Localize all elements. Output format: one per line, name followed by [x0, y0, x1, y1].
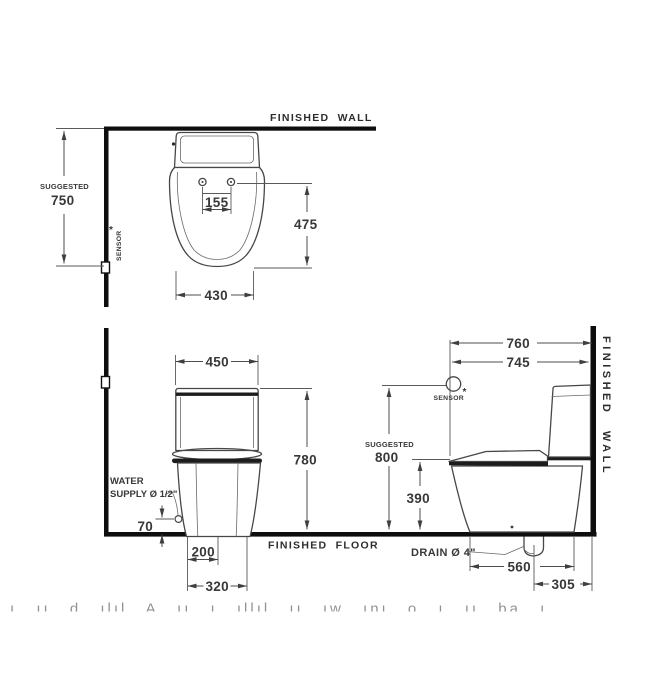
dim-750: SUGGESTED 750: [40, 129, 104, 267]
dim-560-value: 560: [508, 560, 531, 575]
dim-800-value: 800: [375, 450, 398, 465]
front-tank-lid-seam: [176, 393, 258, 396]
dim-430: 430: [176, 271, 254, 303]
toilet-front-view: 450 WATER SUPPLY Ø 1/2" 70: [110, 355, 317, 595]
dim-430-value: 430: [205, 288, 228, 303]
wall-sensor-box: [102, 262, 110, 273]
dim-780-value: 780: [294, 453, 317, 468]
dim-70-value: 70: [138, 519, 154, 534]
urinal-section: FINISHED WALL SUGGESTED 750 SENSOR *: [40, 112, 376, 307]
finished-wall-label-right: FINISHED WALL: [600, 336, 612, 476]
sensor-circle: [446, 377, 460, 391]
mounting-hole-left-center: [202, 181, 204, 183]
side-seat: [449, 451, 548, 462]
dim-760: 760: [450, 336, 592, 351]
dim-760-value: 760: [507, 336, 530, 351]
dim-305: 305: [534, 537, 592, 592]
side-shelf-band: [548, 458, 591, 461]
sensor-asterisk-side: *: [463, 387, 467, 398]
dim-750-value: 750: [51, 193, 74, 208]
finished-wall-label-top: FINISHED WALL: [270, 112, 373, 124]
sensor-label-side: SENSOR: [434, 395, 465, 402]
urinal-cover: [175, 133, 260, 168]
toilet-section: FINISHED FLOOR FINISHED WALL 450: [102, 326, 613, 594]
drawing-canvas: FINISHED WALL SUGGESTED 750 SENSOR *: [0, 0, 645, 700]
drain-label: DRAIN Ø 4": [411, 547, 476, 559]
dim-70: 70: [138, 506, 175, 548]
floor-line: [104, 532, 597, 537]
toilet-side-view: 760 745 SENSOR * SUGGESTED 800: [365, 336, 592, 592]
sensor-asterisk-top: *: [109, 225, 113, 236]
dim-155-value: 155: [205, 195, 229, 210]
dim-800: SUGGESTED 800: [365, 386, 446, 530]
finished-floor-label: FINISHED FLOOR: [268, 540, 379, 552]
bowl-dot: [511, 526, 514, 529]
sensor-label-top: SENSOR: [116, 230, 123, 261]
dim-745-value: 745: [507, 355, 531, 370]
front-tank: [176, 389, 258, 451]
urinal-spud-mark: [172, 142, 175, 145]
dim-745: 745: [452, 355, 589, 370]
left-wall-line: [104, 328, 109, 537]
water-supply-label-2: SUPPLY Ø 1/2": [110, 489, 177, 500]
watermark-fragments: ı ıı d ılıl A ıı ı ıllıl ıı ıw ını o ı ı…: [10, 601, 547, 618]
dim-305-value: 305: [552, 577, 576, 592]
dim-560: 560: [470, 537, 574, 575]
dim-780: 780: [260, 389, 317, 530]
dim-320-value: 320: [206, 579, 229, 594]
dim-200-value: 200: [192, 545, 215, 560]
front-pedestal: [178, 463, 261, 537]
dim-450: 450: [176, 355, 259, 386]
side-bowl: [452, 466, 583, 532]
dim-390: 390: [407, 460, 451, 530]
toilet-dimension-diagram: FINISHED WALL SUGGESTED 750 SENSOR *: [0, 0, 645, 700]
left-wall-sensor-box: [102, 377, 110, 389]
dim-475-value: 475: [294, 217, 318, 232]
water-supply-point: [175, 516, 182, 523]
wall-line-vertical: [104, 127, 109, 308]
water-supply-label-1: WATER: [110, 476, 144, 487]
dim-450-value: 450: [206, 355, 229, 370]
wall-line-horizontal: [104, 127, 376, 131]
suggested-label-top: SUGGESTED: [40, 182, 89, 191]
right-wall-line: [591, 326, 597, 537]
urinal-body: [170, 168, 265, 267]
mounting-hole-right-center: [230, 181, 232, 183]
suggested-label-side: SUGGESTED: [365, 440, 414, 449]
dim-390-value: 390: [407, 491, 430, 506]
